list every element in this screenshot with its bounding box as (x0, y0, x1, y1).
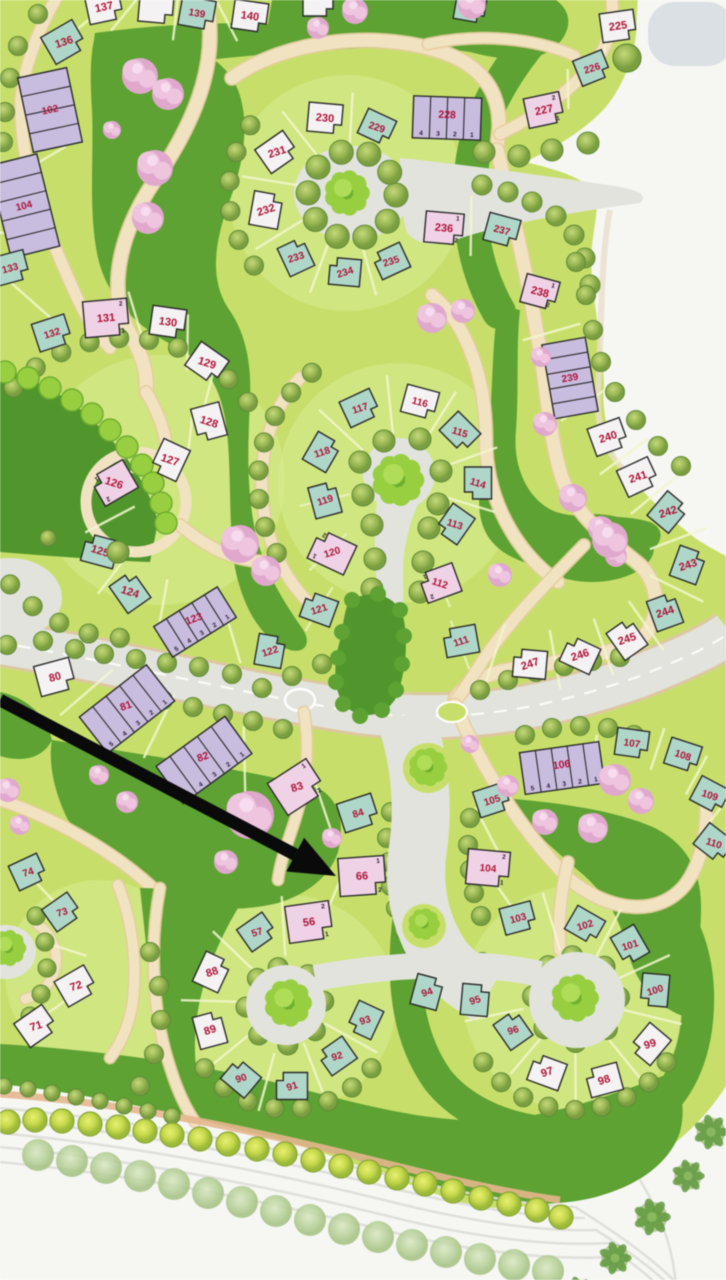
svg-text:130: 130 (158, 315, 178, 329)
svg-text:1: 1 (470, 132, 474, 139)
svg-text:104: 104 (479, 863, 497, 875)
svg-text:131: 131 (96, 312, 115, 326)
svg-text:228: 228 (438, 109, 456, 122)
svg-text:230: 230 (315, 112, 334, 126)
svg-text:236: 236 (434, 222, 453, 236)
svg-text:3: 3 (436, 131, 440, 138)
svg-text:140: 140 (240, 9, 260, 23)
svg-text:2: 2 (453, 131, 457, 138)
svg-text:56: 56 (302, 916, 316, 930)
svg-text:225: 225 (608, 19, 628, 33)
svg-text:106: 106 (552, 758, 571, 772)
svg-text:4: 4 (419, 130, 423, 137)
svg-text:66: 66 (356, 870, 369, 883)
